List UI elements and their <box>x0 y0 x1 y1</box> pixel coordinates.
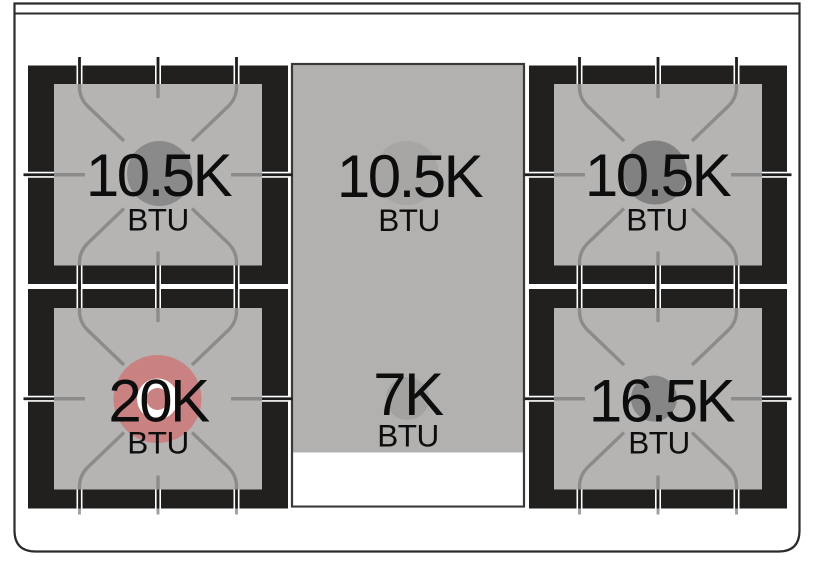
svg-text:BTU: BTU <box>628 425 690 461</box>
svg-text:10.5K: 10.5K <box>585 142 732 209</box>
svg-text:10.5K: 10.5K <box>86 142 233 209</box>
svg-text:BTU: BTU <box>377 418 439 454</box>
svg-text:BTU: BTU <box>127 202 189 238</box>
svg-text:BTU: BTU <box>127 425 189 461</box>
svg-text:BTU: BTU <box>626 202 688 238</box>
svg-text:BTU: BTU <box>378 202 440 238</box>
svg-text:10.5K: 10.5K <box>337 143 484 210</box>
